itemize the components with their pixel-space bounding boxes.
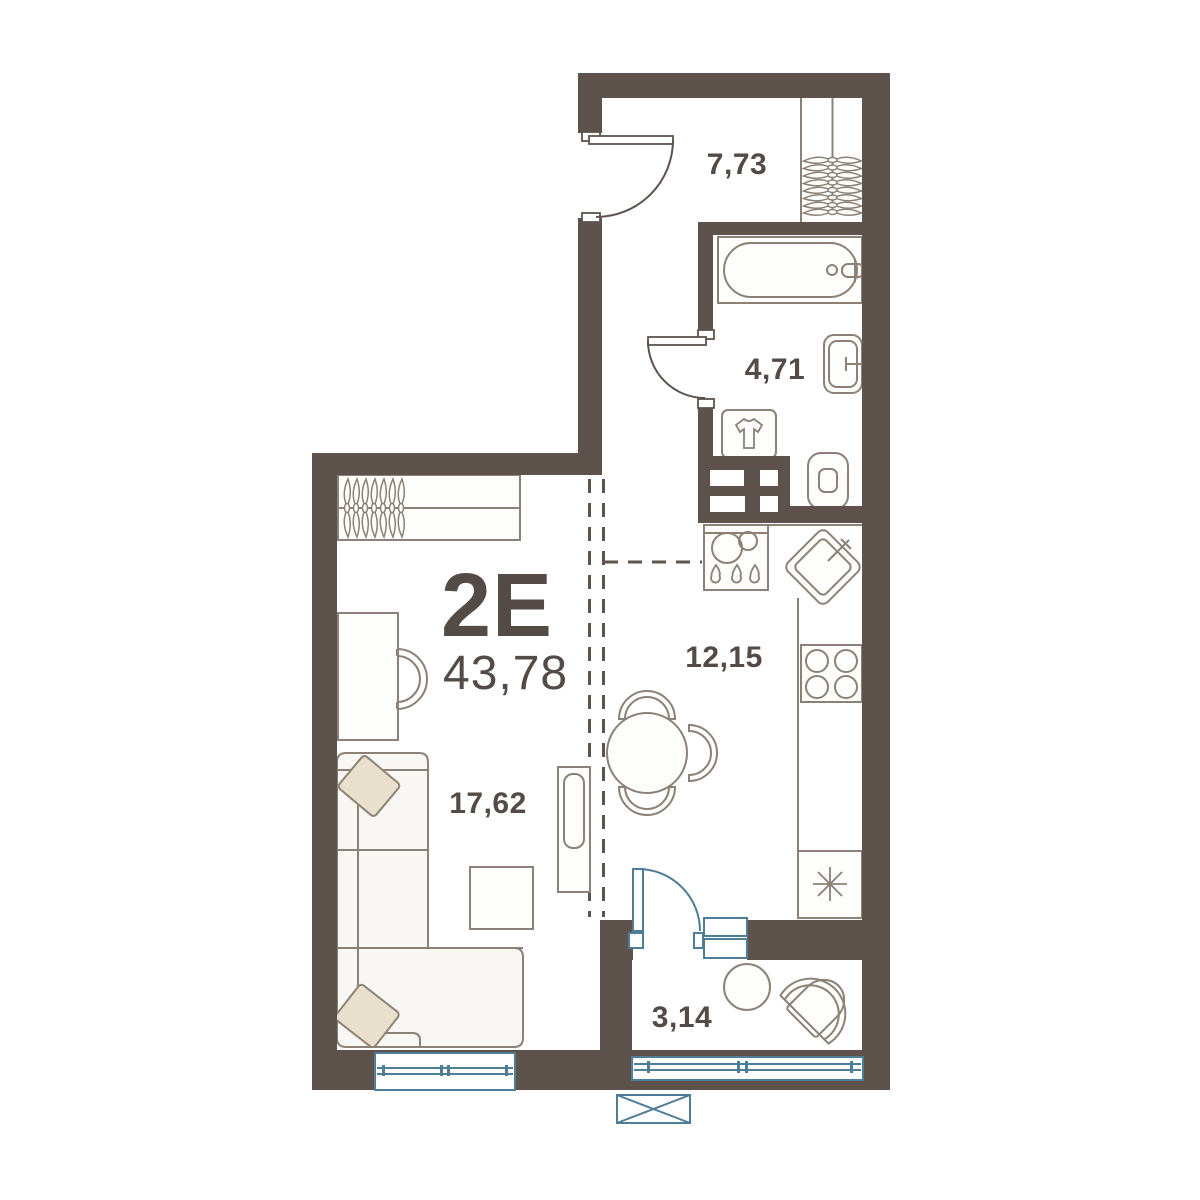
desk — [338, 613, 398, 740]
total-area-label: 43,78 — [443, 647, 568, 700]
coffee-table — [470, 867, 533, 929]
dining-table-icon — [607, 713, 687, 793]
room-label-bathroom: 4,71 — [745, 353, 805, 386]
window-balcony — [632, 1057, 863, 1080]
floor-plan: 2E 43,78 7,73 4,71 12,15 17,62 3,14 — [0, 0, 1200, 1200]
kitchen-sink — [783, 527, 862, 606]
living-wardrobe — [338, 475, 520, 540]
entrance-door — [582, 132, 673, 222]
vent-shaft — [698, 456, 790, 523]
bathroom-door — [648, 330, 714, 408]
desk-chair — [397, 649, 427, 709]
window-living — [375, 1053, 515, 1090]
balcony-door-window — [704, 918, 747, 958]
room-label-balcony: 3,14 — [652, 1001, 712, 1034]
dining-set — [607, 691, 717, 815]
ac-unit — [617, 1095, 690, 1123]
bath-sink — [824, 335, 862, 393]
balcony-table — [724, 964, 770, 1010]
floor-plan-page: 2E 43,78 7,73 4,71 12,15 17,62 3,14 — [0, 0, 1200, 1200]
balcony-door — [629, 869, 747, 958]
apartment-type-label: 2E — [441, 556, 553, 656]
toilet — [808, 453, 848, 509]
stove — [801, 645, 862, 702]
fridge-snowflake-icon — [813, 867, 847, 901]
room-label-kitchen: 12,15 — [685, 641, 763, 674]
dryer — [722, 410, 776, 458]
bathtub — [718, 237, 864, 303]
chair-icon — [689, 725, 717, 781]
washing-machine — [704, 525, 768, 590]
balcony-chair — [776, 961, 863, 1048]
fridge — [798, 851, 862, 918]
room-label-living: 17,62 — [449, 787, 527, 820]
tv-stand — [558, 767, 590, 892]
hallway-wardrobe — [801, 98, 862, 222]
room-label-hallway: 7,73 — [707, 148, 767, 181]
